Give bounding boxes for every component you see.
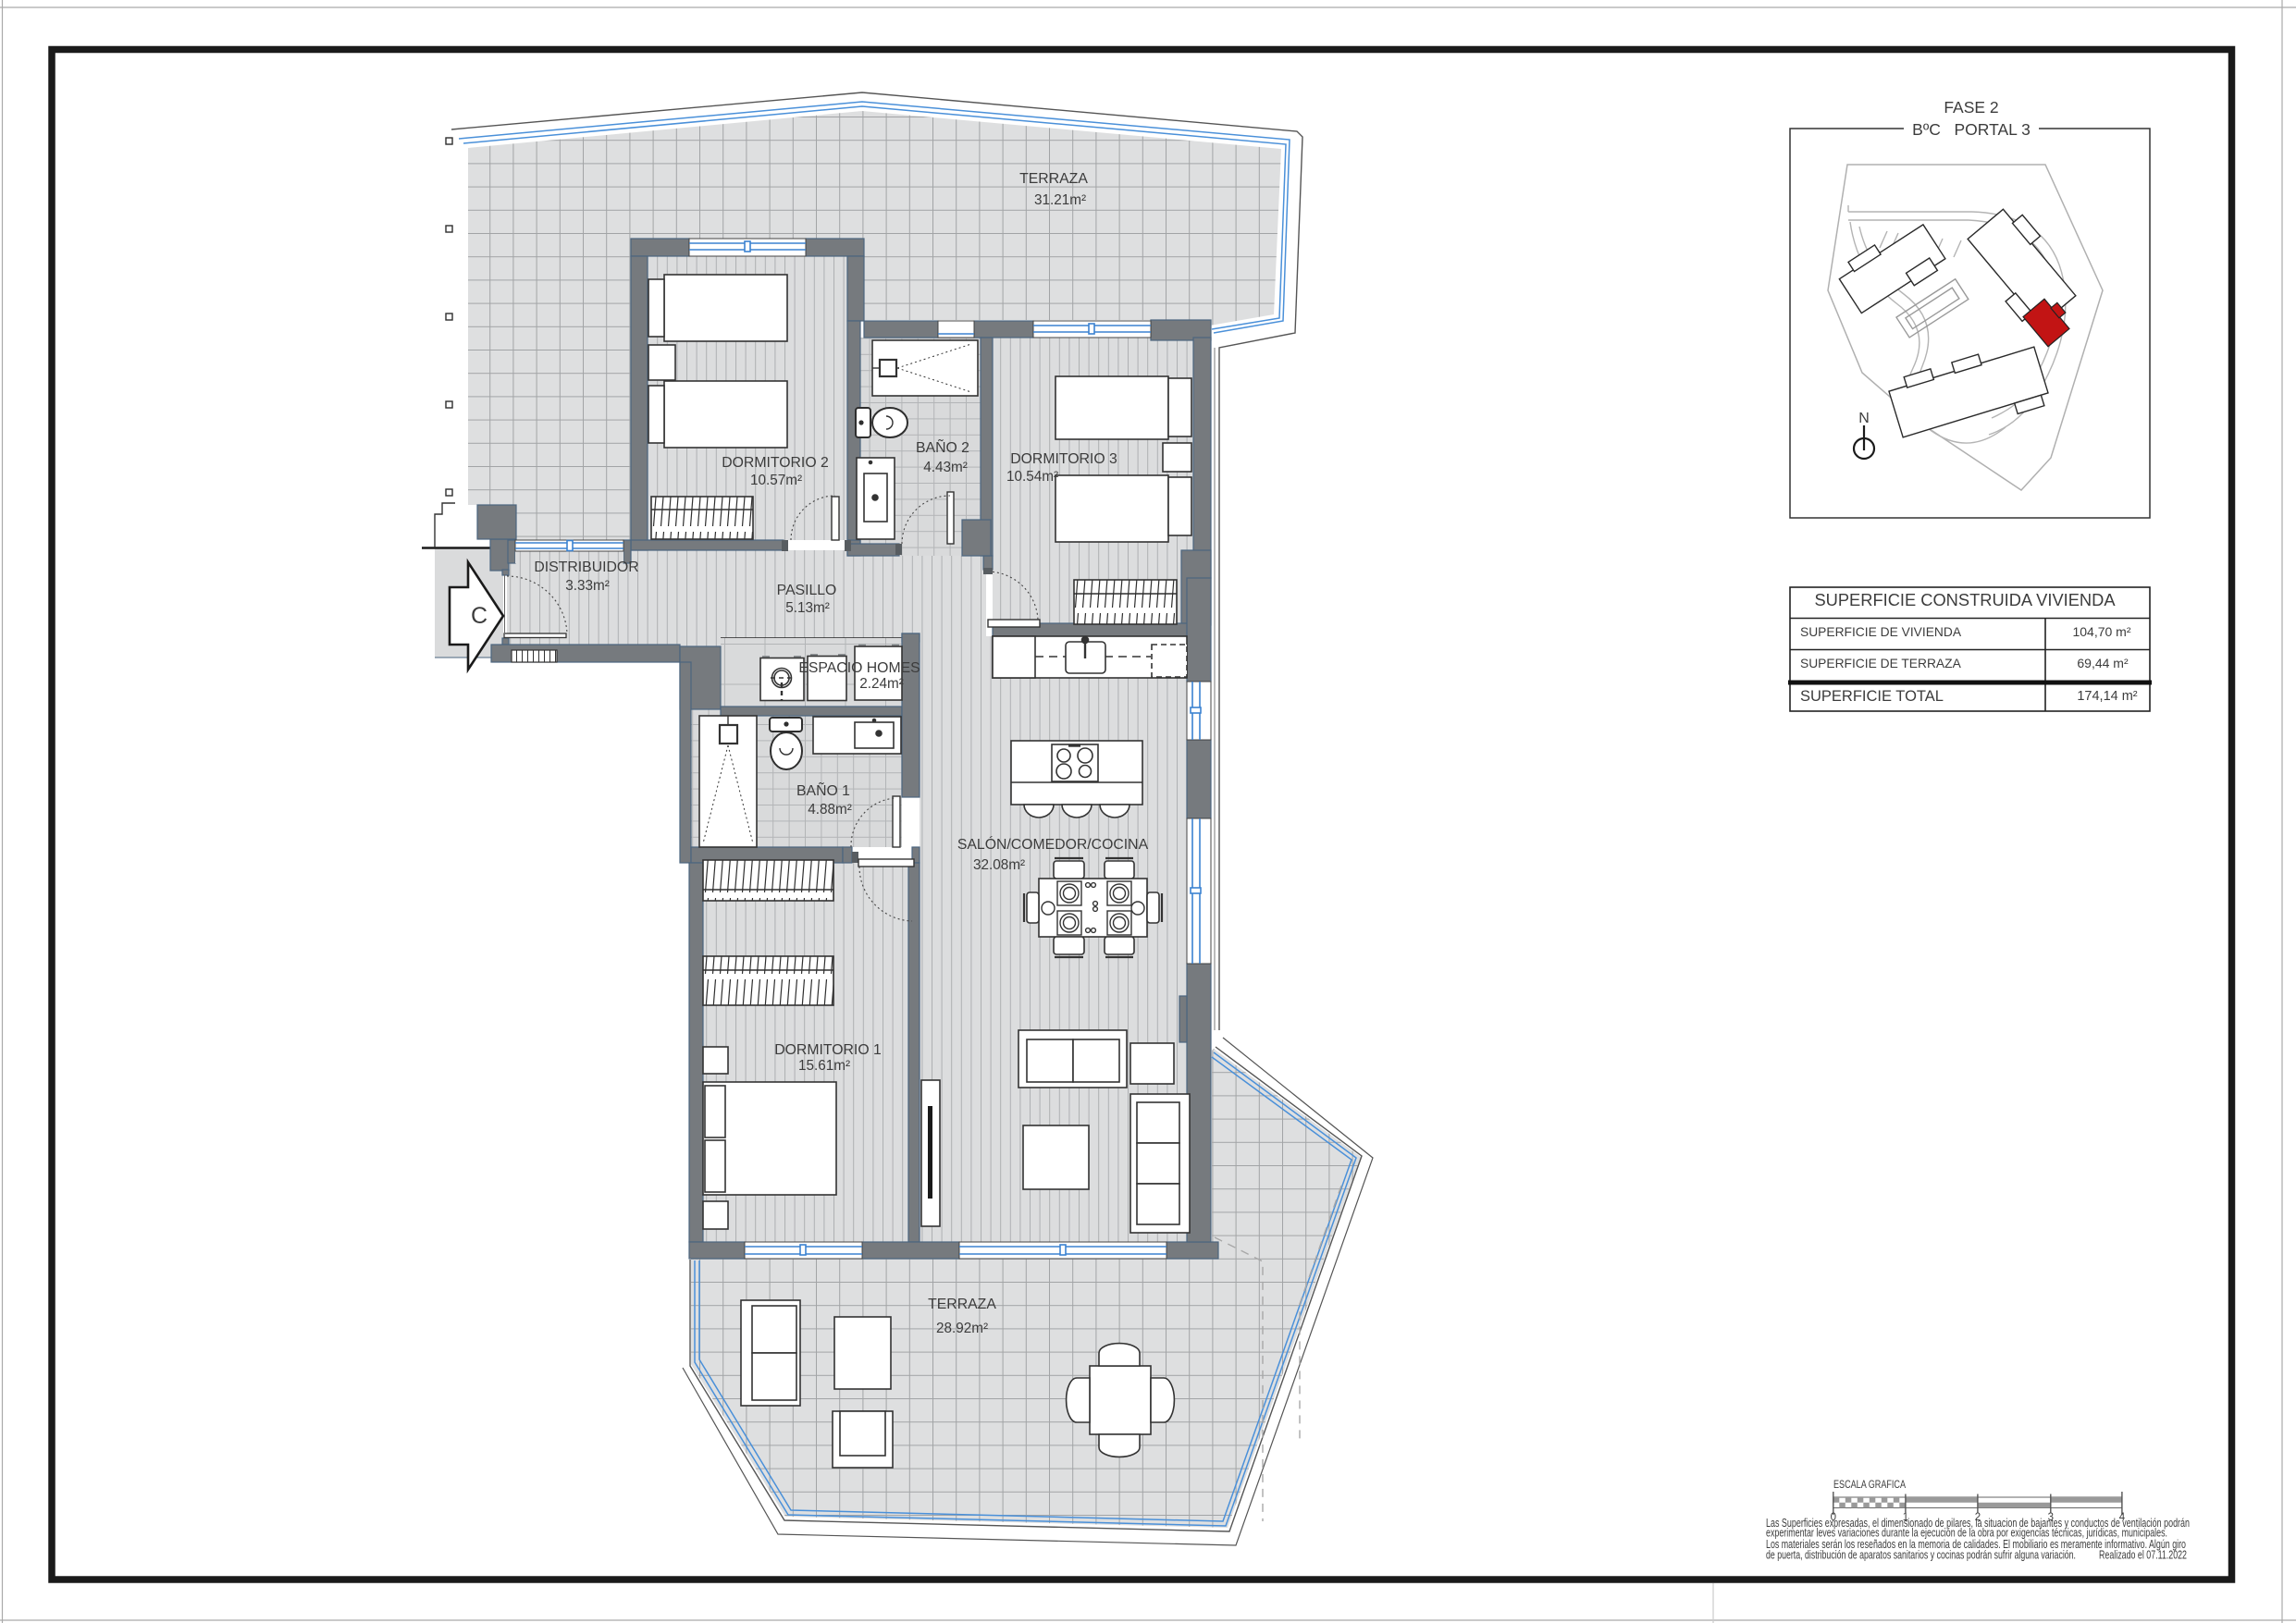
svg-text:BAÑO 1: BAÑO 1: [796, 781, 850, 799]
svg-text:2.24m²: 2.24m²: [859, 676, 904, 692]
svg-text:TERRAZA: TERRAZA: [1019, 171, 1088, 187]
svg-text:SUPERFICIE CONSTRUIDA VIVIENDA: SUPERFICIE CONSTRUIDA VIVIENDA: [1814, 590, 2116, 609]
svg-text:BºC PORTAL 3: BºC PORTAL 3: [1912, 120, 2031, 139]
svg-text:15.61m²: 15.61m²: [798, 1058, 850, 1074]
svg-text:SUPERFICIE DE TERRAZA: SUPERFICIE DE TERRAZA: [1800, 657, 1962, 670]
svg-text:ESCALA GRAFICA: ESCALA GRAFICA: [1833, 1480, 1906, 1491]
svg-text:4.43m²: 4.43m²: [923, 460, 968, 475]
svg-text:28.92m²: 28.92m²: [936, 1321, 988, 1336]
svg-text:31.21m²: 31.21m²: [1034, 192, 1086, 208]
svg-text:69,44 m²: 69,44 m²: [2077, 656, 2129, 670]
svg-text:10.54m²: 10.54m²: [1006, 469, 1058, 485]
svg-text:Realizado el 07.11.2022: Realizado el 07.11.2022: [2099, 1548, 2187, 1562]
svg-text:N: N: [1858, 411, 1870, 426]
svg-text:PASILLO: PASILLO: [777, 583, 837, 598]
svg-text:5.13m²: 5.13m²: [785, 600, 830, 616]
svg-text:ESPACIO HOMES: ESPACIO HOMES: [798, 660, 920, 676]
svg-text:DORMITORIO 3: DORMITORIO 3: [1010, 451, 1117, 467]
svg-text:4.88m²: 4.88m²: [808, 802, 852, 818]
svg-text:de puerta, distribución de apa: de puerta, distribución de aparatos sani…: [1766, 1548, 2076, 1562]
svg-text:104,70 m²: 104,70 m²: [2072, 624, 2130, 639]
svg-text:TERRAZA: TERRAZA: [928, 1297, 996, 1312]
svg-text:DISTRIBUIDOR: DISTRIBUIDOR: [534, 559, 638, 575]
svg-text:DORMITORIO 2: DORMITORIO 2: [722, 455, 829, 471]
svg-text:SUPERFICIE TOTAL: SUPERFICIE TOTAL: [1800, 688, 1944, 705]
svg-text:3.33m²: 3.33m²: [565, 578, 610, 594]
svg-text:FASE 2: FASE 2: [1944, 98, 1998, 117]
svg-text:BAÑO 2: BAÑO 2: [916, 437, 969, 456]
svg-text:SALÓN/COMEDOR/COCINA: SALÓN/COMEDOR/COCINA: [957, 835, 1149, 853]
svg-text:32.08m²: 32.08m²: [973, 857, 1025, 873]
svg-text:174,14 m²: 174,14 m²: [2077, 689, 2137, 704]
svg-text:10.57m²: 10.57m²: [750, 473, 802, 488]
svg-text:DORMITORIO 1: DORMITORIO 1: [774, 1042, 882, 1058]
svg-text:SUPERFICIE DE VIVIENDA: SUPERFICIE DE VIVIENDA: [1800, 625, 1962, 639]
svg-text:C: C: [471, 603, 488, 629]
